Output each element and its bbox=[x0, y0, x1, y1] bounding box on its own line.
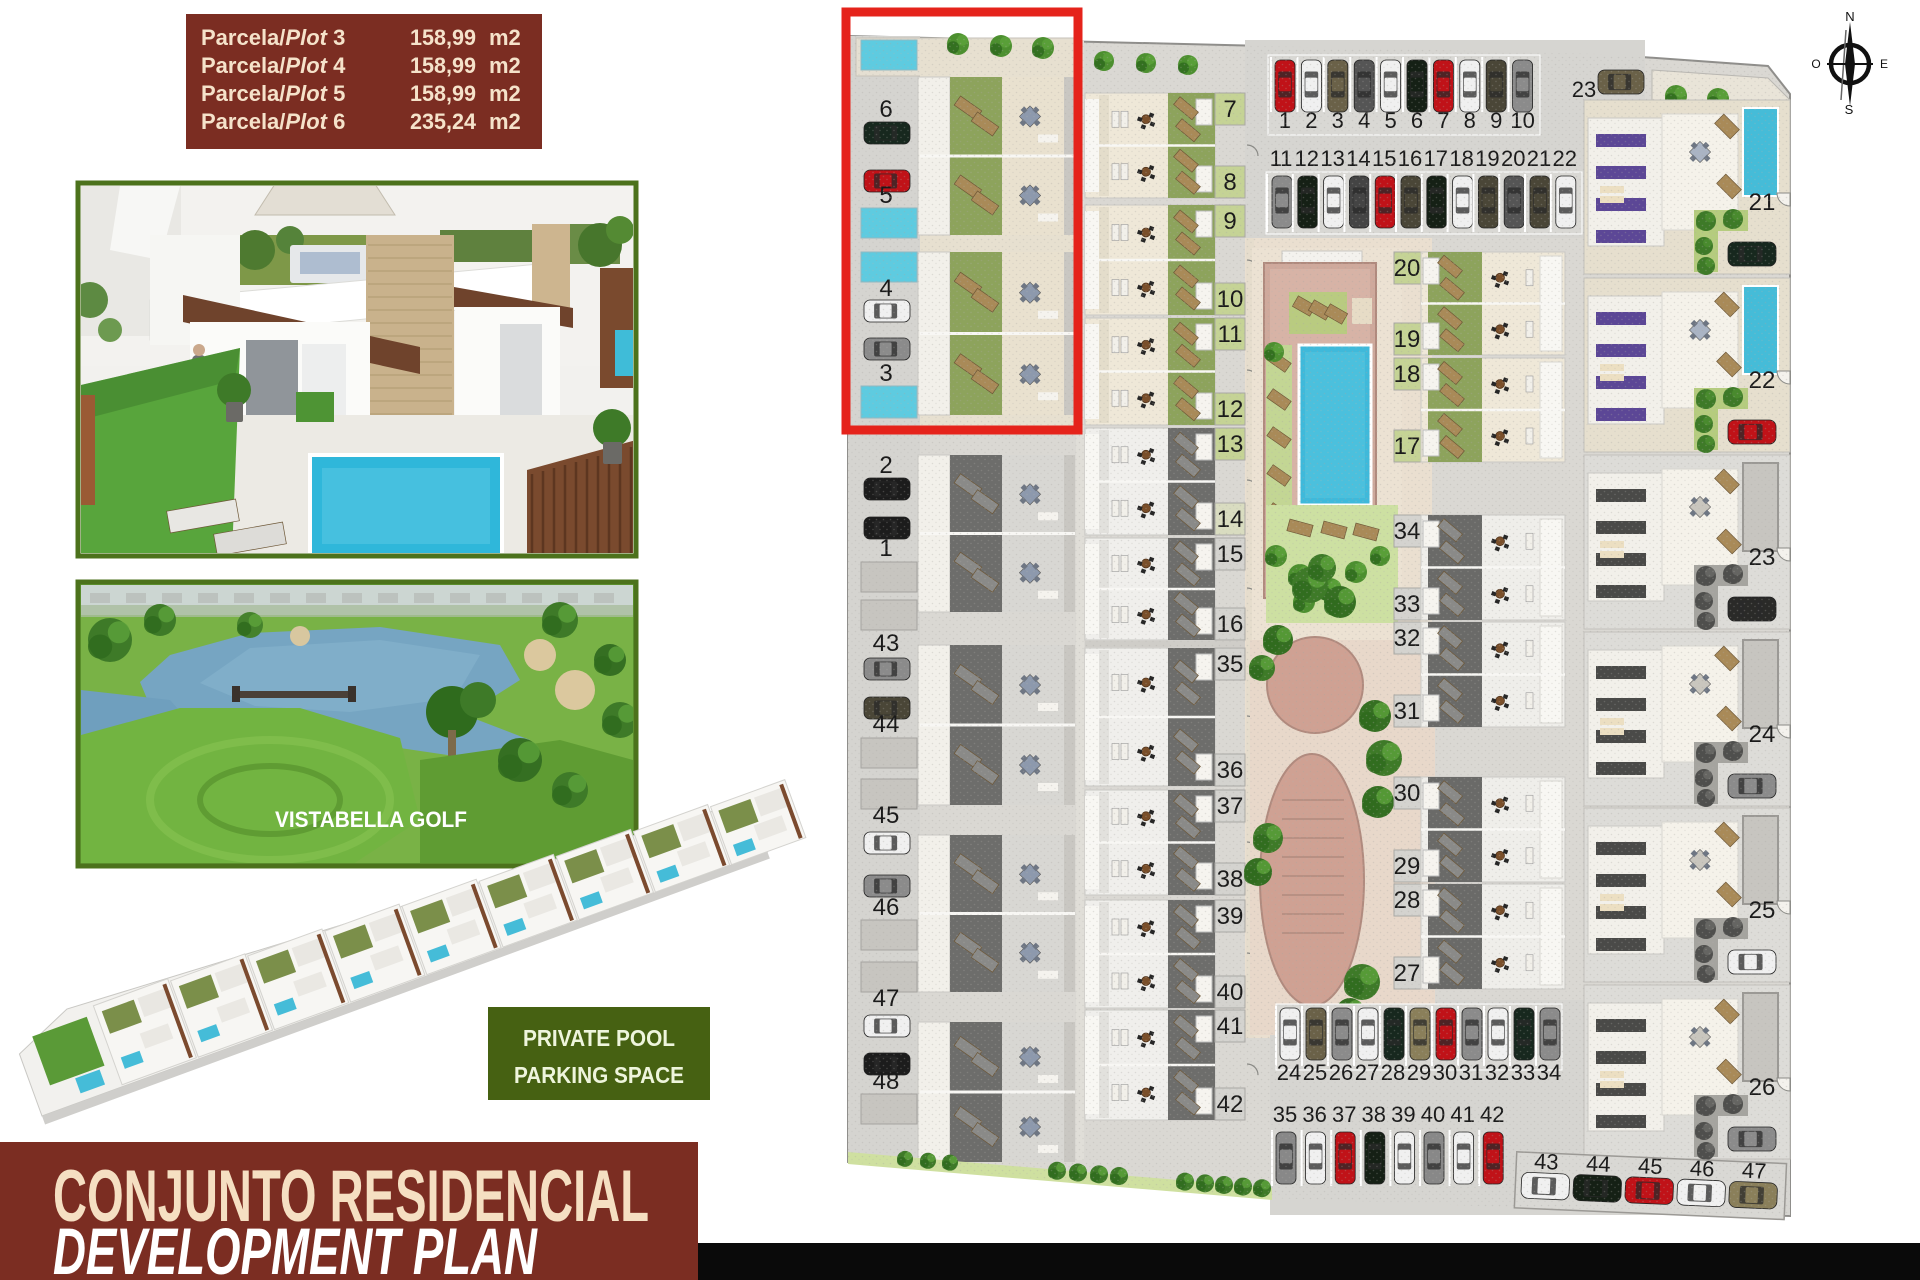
svg-text:DEVELOPMENT PLAN: DEVELOPMENT PLAN bbox=[53, 1214, 538, 1280]
svg-text:PRIVATE POOL: PRIVATE POOL bbox=[523, 1025, 675, 1051]
svg-text:N: N bbox=[1845, 9, 1854, 24]
svg-text:VISTABELLA GOLF: VISTABELLA GOLF bbox=[275, 807, 467, 832]
svg-text:PARKING SPACE: PARKING SPACE bbox=[514, 1062, 684, 1088]
svg-text:S: S bbox=[1845, 102, 1854, 117]
svg-text:O: O bbox=[1811, 57, 1820, 71]
svg-text:E: E bbox=[1880, 57, 1888, 71]
